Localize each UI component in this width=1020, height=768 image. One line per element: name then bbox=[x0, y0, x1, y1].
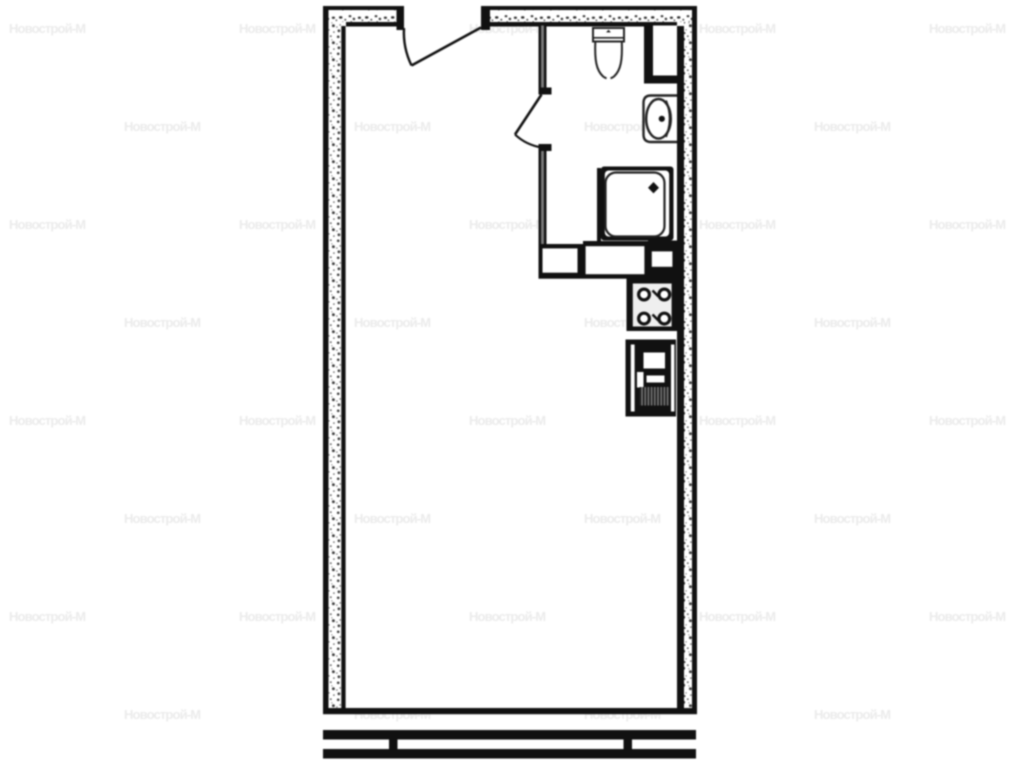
svg-text:Новострой-М: Новострой-М bbox=[469, 609, 545, 624]
svg-text:Новострой-М: Новострой-М bbox=[9, 413, 85, 428]
svg-text:Новострой-М: Новострой-М bbox=[469, 413, 545, 428]
svg-text:Новострой-М: Новострой-М bbox=[814, 707, 890, 722]
svg-text:Новострой-М: Новострой-М bbox=[469, 217, 545, 232]
svg-text:Новострой-М: Новострой-М bbox=[929, 609, 1005, 624]
svg-text:Новострой-М: Новострой-М bbox=[124, 315, 200, 330]
svg-text:Новострой-М: Новострой-М bbox=[584, 511, 660, 526]
svg-text:Новострой-М: Новострой-М bbox=[124, 707, 200, 722]
svg-text:Новострой-М: Новострой-М bbox=[124, 511, 200, 526]
svg-text:Новострой-М: Новострой-М bbox=[929, 217, 1005, 232]
svg-text:Новострой-М: Новострой-М bbox=[814, 511, 890, 526]
svg-text:Новострой-М: Новострой-М bbox=[929, 21, 1005, 36]
svg-text:Новострой-М: Новострой-М bbox=[699, 609, 775, 624]
svg-text:Новострой-М: Новострой-М bbox=[699, 21, 775, 36]
svg-text:Новострой-М: Новострой-М bbox=[929, 413, 1005, 428]
svg-text:Новострой-М: Новострой-М bbox=[699, 413, 775, 428]
svg-text:Новострой-М: Новострой-М bbox=[814, 119, 890, 134]
svg-text:Новострой-М: Новострой-М bbox=[239, 21, 315, 36]
svg-text:Новострой-М: Новострой-М bbox=[239, 609, 315, 624]
svg-text:Новострой-М: Новострой-М bbox=[9, 217, 85, 232]
svg-text:Новострой-М: Новострой-М bbox=[354, 315, 430, 330]
svg-text:Новострой-М: Новострой-М bbox=[9, 21, 85, 36]
svg-text:Новострой-М: Новострой-М bbox=[239, 413, 315, 428]
svg-text:Новострой-М: Новострой-М bbox=[124, 119, 200, 134]
svg-text:Новострой-М: Новострой-М bbox=[354, 511, 430, 526]
svg-text:Новострой-М: Новострой-М bbox=[354, 119, 430, 134]
svg-text:Новострой-М: Новострой-М bbox=[239, 217, 315, 232]
svg-text:Новострой-М: Новострой-М bbox=[699, 217, 775, 232]
svg-text:Новострой-М: Новострой-М bbox=[814, 315, 890, 330]
svg-text:Новострой-М: Новострой-М bbox=[9, 609, 85, 624]
